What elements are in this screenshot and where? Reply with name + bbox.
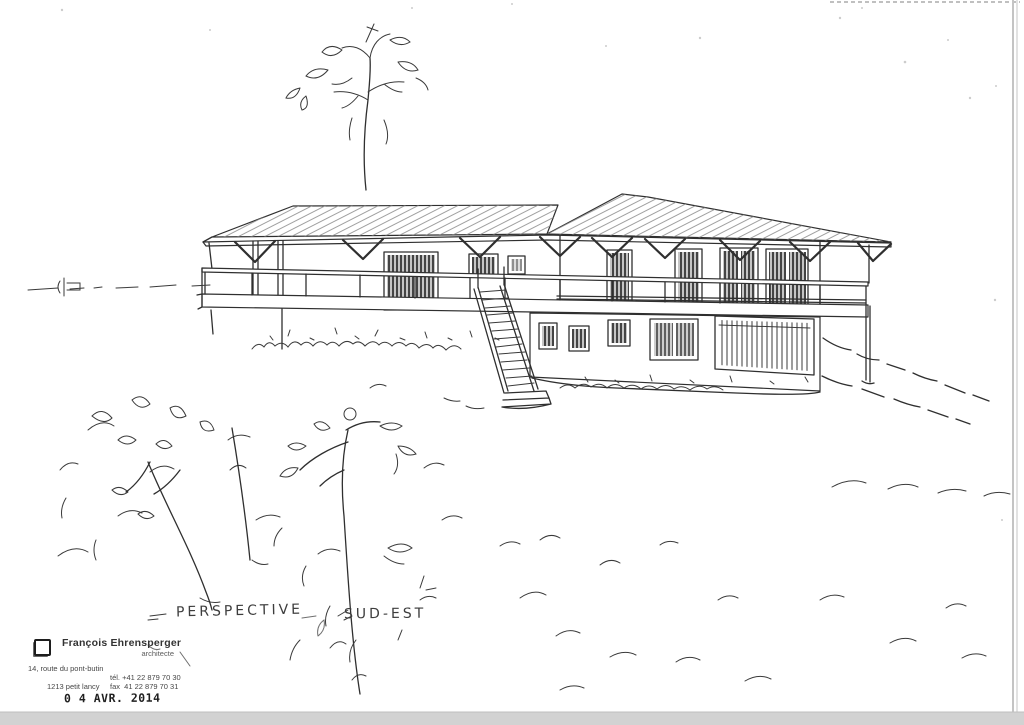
hillside-foreground-arcs — [832, 481, 1010, 496]
scan-speckles — [61, 3, 1003, 521]
small-window2-glass — [511, 259, 522, 271]
hillside-contour-lower — [822, 376, 970, 424]
tall-tree — [286, 24, 428, 190]
architect-address-line2: 1213 petit lancy — [47, 682, 100, 691]
hillside-contour-upper — [823, 338, 989, 401]
vegetation-sketch — [62, 24, 429, 694]
left-horizon-dashes — [28, 285, 210, 290]
balcony-top-rail — [202, 268, 868, 286]
garage-window-glass-l — [654, 323, 673, 356]
architect-phone: tél. +41 22 879 70 30 — [110, 673, 181, 682]
garage-window-glass-r — [676, 323, 694, 356]
left-bushes — [62, 397, 269, 610]
scanned-architectural-sheet: PERSPECTIVE SUD-EST François Ehrensperge… — [0, 0, 1024, 725]
basement-window2-glass — [572, 329, 586, 348]
scan-bottom-band — [0, 712, 1024, 725]
basement-window3-glass — [611, 323, 627, 343]
basement-window1-glass — [542, 326, 554, 346]
main-roof-hatch — [547, 194, 891, 242]
foreground-arcs-right — [520, 535, 986, 690]
scrub-ticks-under-deck — [270, 328, 499, 340]
architect-fax: fax 41 22 879 70 31 — [110, 682, 178, 691]
scrub-row-under-deck — [252, 341, 461, 350]
architect-logo-icon — [34, 639, 51, 656]
house-sketch — [197, 194, 891, 408]
date-stamp: 0 4 AVR. 2014 — [64, 691, 161, 706]
perspective-sketch — [0, 0, 1024, 725]
caption-underline-dashes — [148, 614, 166, 620]
caption-sud-est: SUD-EST — [344, 606, 426, 623]
stair-bottom-steps — [502, 391, 551, 408]
distant-object-sketch — [58, 278, 80, 296]
foreground-sapling — [274, 408, 416, 694]
small-window-glass — [472, 257, 495, 274]
architect-address-line1: 14, route du pont-butin — [28, 664, 103, 673]
architect-title: architecte — [100, 649, 174, 658]
deck-left-edge — [197, 268, 202, 309]
architect-name: François Ehrensperger — [62, 637, 181, 649]
caption-perspective: PERSPECTIVE — [176, 602, 303, 621]
balcony-end-posts — [862, 306, 874, 384]
landscape-sketch — [28, 278, 1010, 690]
veranda-roof-hatch — [212, 205, 558, 237]
